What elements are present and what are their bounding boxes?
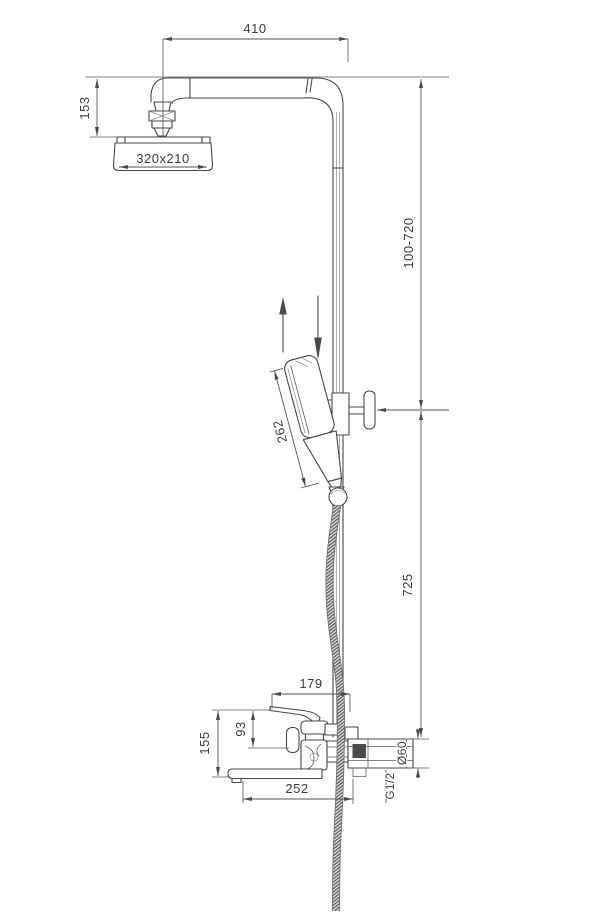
head-size-label: 320x210 bbox=[136, 151, 189, 166]
dim-top-arm-width: 410 bbox=[163, 21, 348, 39]
spout-length-label: 252 bbox=[285, 781, 308, 796]
hand-shower-length-label: 262 bbox=[270, 418, 290, 444]
shower-system-technical-drawing: 320x210 262 bbox=[0, 0, 609, 924]
dim-riser-lower-height: 725 bbox=[400, 411, 421, 737]
dim-riser-adjust-range: 100-720 bbox=[401, 79, 421, 409]
aerator bbox=[232, 779, 241, 783]
wall-flange-diameter-label: Ø60 bbox=[395, 741, 409, 765]
lever-to-body-label: 93 bbox=[233, 721, 248, 736]
lever-to-spout-label: 155 bbox=[197, 731, 212, 754]
dim-head-drop: 153 bbox=[77, 79, 97, 136]
mixer-width-label: 179 bbox=[299, 676, 322, 691]
head-drop-label: 153 bbox=[77, 96, 92, 119]
drawing-svg: 320x210 262 bbox=[0, 0, 609, 924]
dim-thread-size: G1/2 bbox=[385, 773, 397, 800]
thread-size-label: G1/2 bbox=[385, 773, 397, 800]
rain-shower-head: 320x210 bbox=[114, 137, 213, 171]
dim-lever-to-spout: 155 bbox=[197, 711, 218, 776]
riser-adjust-range-label: 100-720 bbox=[401, 217, 416, 268]
diverter-knob bbox=[287, 728, 300, 753]
dim-lever-to-body: 93 bbox=[233, 711, 253, 747]
wall-anchor-block bbox=[353, 744, 367, 758]
hose-connector bbox=[329, 488, 347, 506]
down-arrow-icon bbox=[314, 296, 322, 360]
top-arm-width-label: 410 bbox=[243, 21, 266, 36]
shower-arm bbox=[149, 78, 189, 136]
riser-lower-height-label: 725 bbox=[400, 573, 415, 596]
up-arrow-icon bbox=[279, 297, 287, 352]
dim-wall-flange-diameter: Ø60 bbox=[395, 729, 418, 778]
